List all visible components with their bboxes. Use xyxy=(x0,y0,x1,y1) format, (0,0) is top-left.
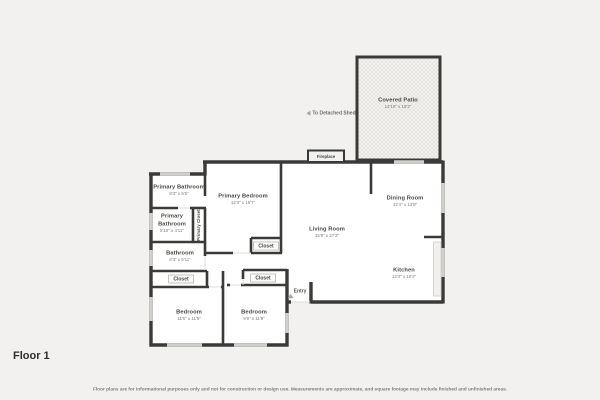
shed-note-text: To Detached Shed xyxy=(312,110,355,116)
floorplan-page: Covered Patio 14'10" x 18'2" To Detached… xyxy=(0,0,600,400)
closet-label-primary-bedroom: Closet xyxy=(253,241,278,250)
room-name: Living Room xyxy=(309,225,345,233)
room-dims: 12'4" x 13'8" xyxy=(387,202,424,208)
fireplace-label: Fireplace xyxy=(317,154,335,159)
room-dims: 12'4" x 10'2" xyxy=(392,274,416,280)
room-label-primary-bathroom-lower: Primary Bathroom 5'10" x 4'11" xyxy=(152,212,193,233)
closet-label-right: Closet xyxy=(250,273,275,282)
room-label-covered-patio: Covered Patio 14'10" x 18'2" xyxy=(378,96,418,110)
room-name: Covered Patio xyxy=(378,96,418,104)
room-name: Dining Room xyxy=(387,194,424,202)
room-label-primary-bathroom-upper: Primary Bathroom 8'3" x 5'5" xyxy=(153,183,205,197)
room-name: Kitchen xyxy=(392,266,416,274)
room-label-bedroom-left: Bedroom 11'6" x 11'9" xyxy=(176,308,202,322)
closet-label-left: Closet xyxy=(168,275,193,284)
room-name: Bathroom xyxy=(166,249,194,257)
room-name: Primary Bathroom xyxy=(152,212,193,227)
room-label-primary-bedroom: Primary Bedroom 12'3" x 15'7" xyxy=(218,192,268,206)
room-dims: 12'3" x 15'7" xyxy=(218,200,268,206)
room-name: Bedroom xyxy=(241,308,267,316)
entry-text: Entry xyxy=(294,288,307,294)
room-name: Bedroom xyxy=(176,308,202,316)
room-dims: 15'8" x 27'2" xyxy=(309,233,345,239)
entry-note: Entry xyxy=(288,288,307,294)
disclaimer-text: Floor plans are for informational purpos… xyxy=(93,386,507,392)
room-dims: 9'9" x 11'9" xyxy=(241,316,267,322)
room-label-bedroom-right: Bedroom 9'9" x 11'9" xyxy=(241,308,267,322)
room-dims: 14'10" x 18'2" xyxy=(378,104,418,110)
room-name: Primary Bathroom xyxy=(153,183,205,191)
primary-closet-label: Primary Closet xyxy=(197,209,202,240)
room-dims: 8'3" x 5'5" xyxy=(153,191,205,197)
room-label-kitchen: Kitchen 12'4" x 10'2" xyxy=(392,266,416,280)
room-label-living-room: Living Room 15'8" x 27'2" xyxy=(309,225,345,239)
room-dims: 8'3" x 5'11" xyxy=(166,257,194,263)
room-label-dining-room: Dining Room 12'4" x 13'8" xyxy=(387,194,424,208)
floor-title: Floor 1 xyxy=(13,350,50,362)
left-arrow-icon xyxy=(306,111,310,116)
room-label-bathroom: Bathroom 8'3" x 5'11" xyxy=(166,249,194,263)
kitchen-counter xyxy=(434,242,442,296)
room-name: Primary Bedroom xyxy=(218,192,268,200)
room-dims: 11'6" x 11'9" xyxy=(176,316,202,322)
floorplan-drawing xyxy=(0,0,600,400)
to-detached-shed-note: To Detached Shed xyxy=(306,110,355,116)
room-dims: 5'10" x 4'11" xyxy=(152,228,193,234)
